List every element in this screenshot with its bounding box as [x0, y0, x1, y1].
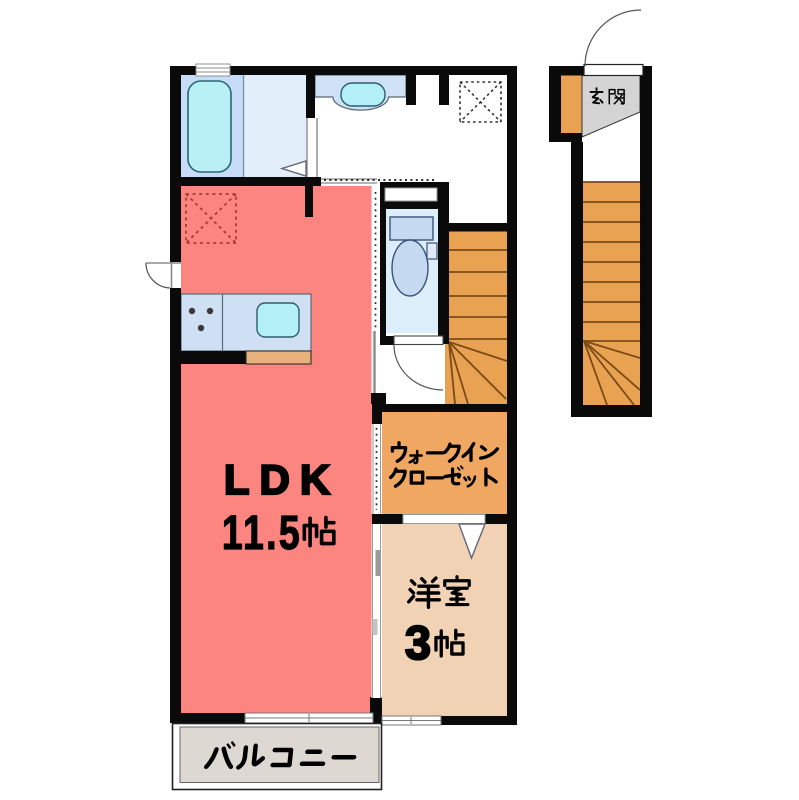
svg-text:3: 3: [405, 616, 431, 669]
svg-text:11.5: 11.5: [222, 507, 302, 561]
svg-text:LDK: LDK: [224, 456, 340, 503]
